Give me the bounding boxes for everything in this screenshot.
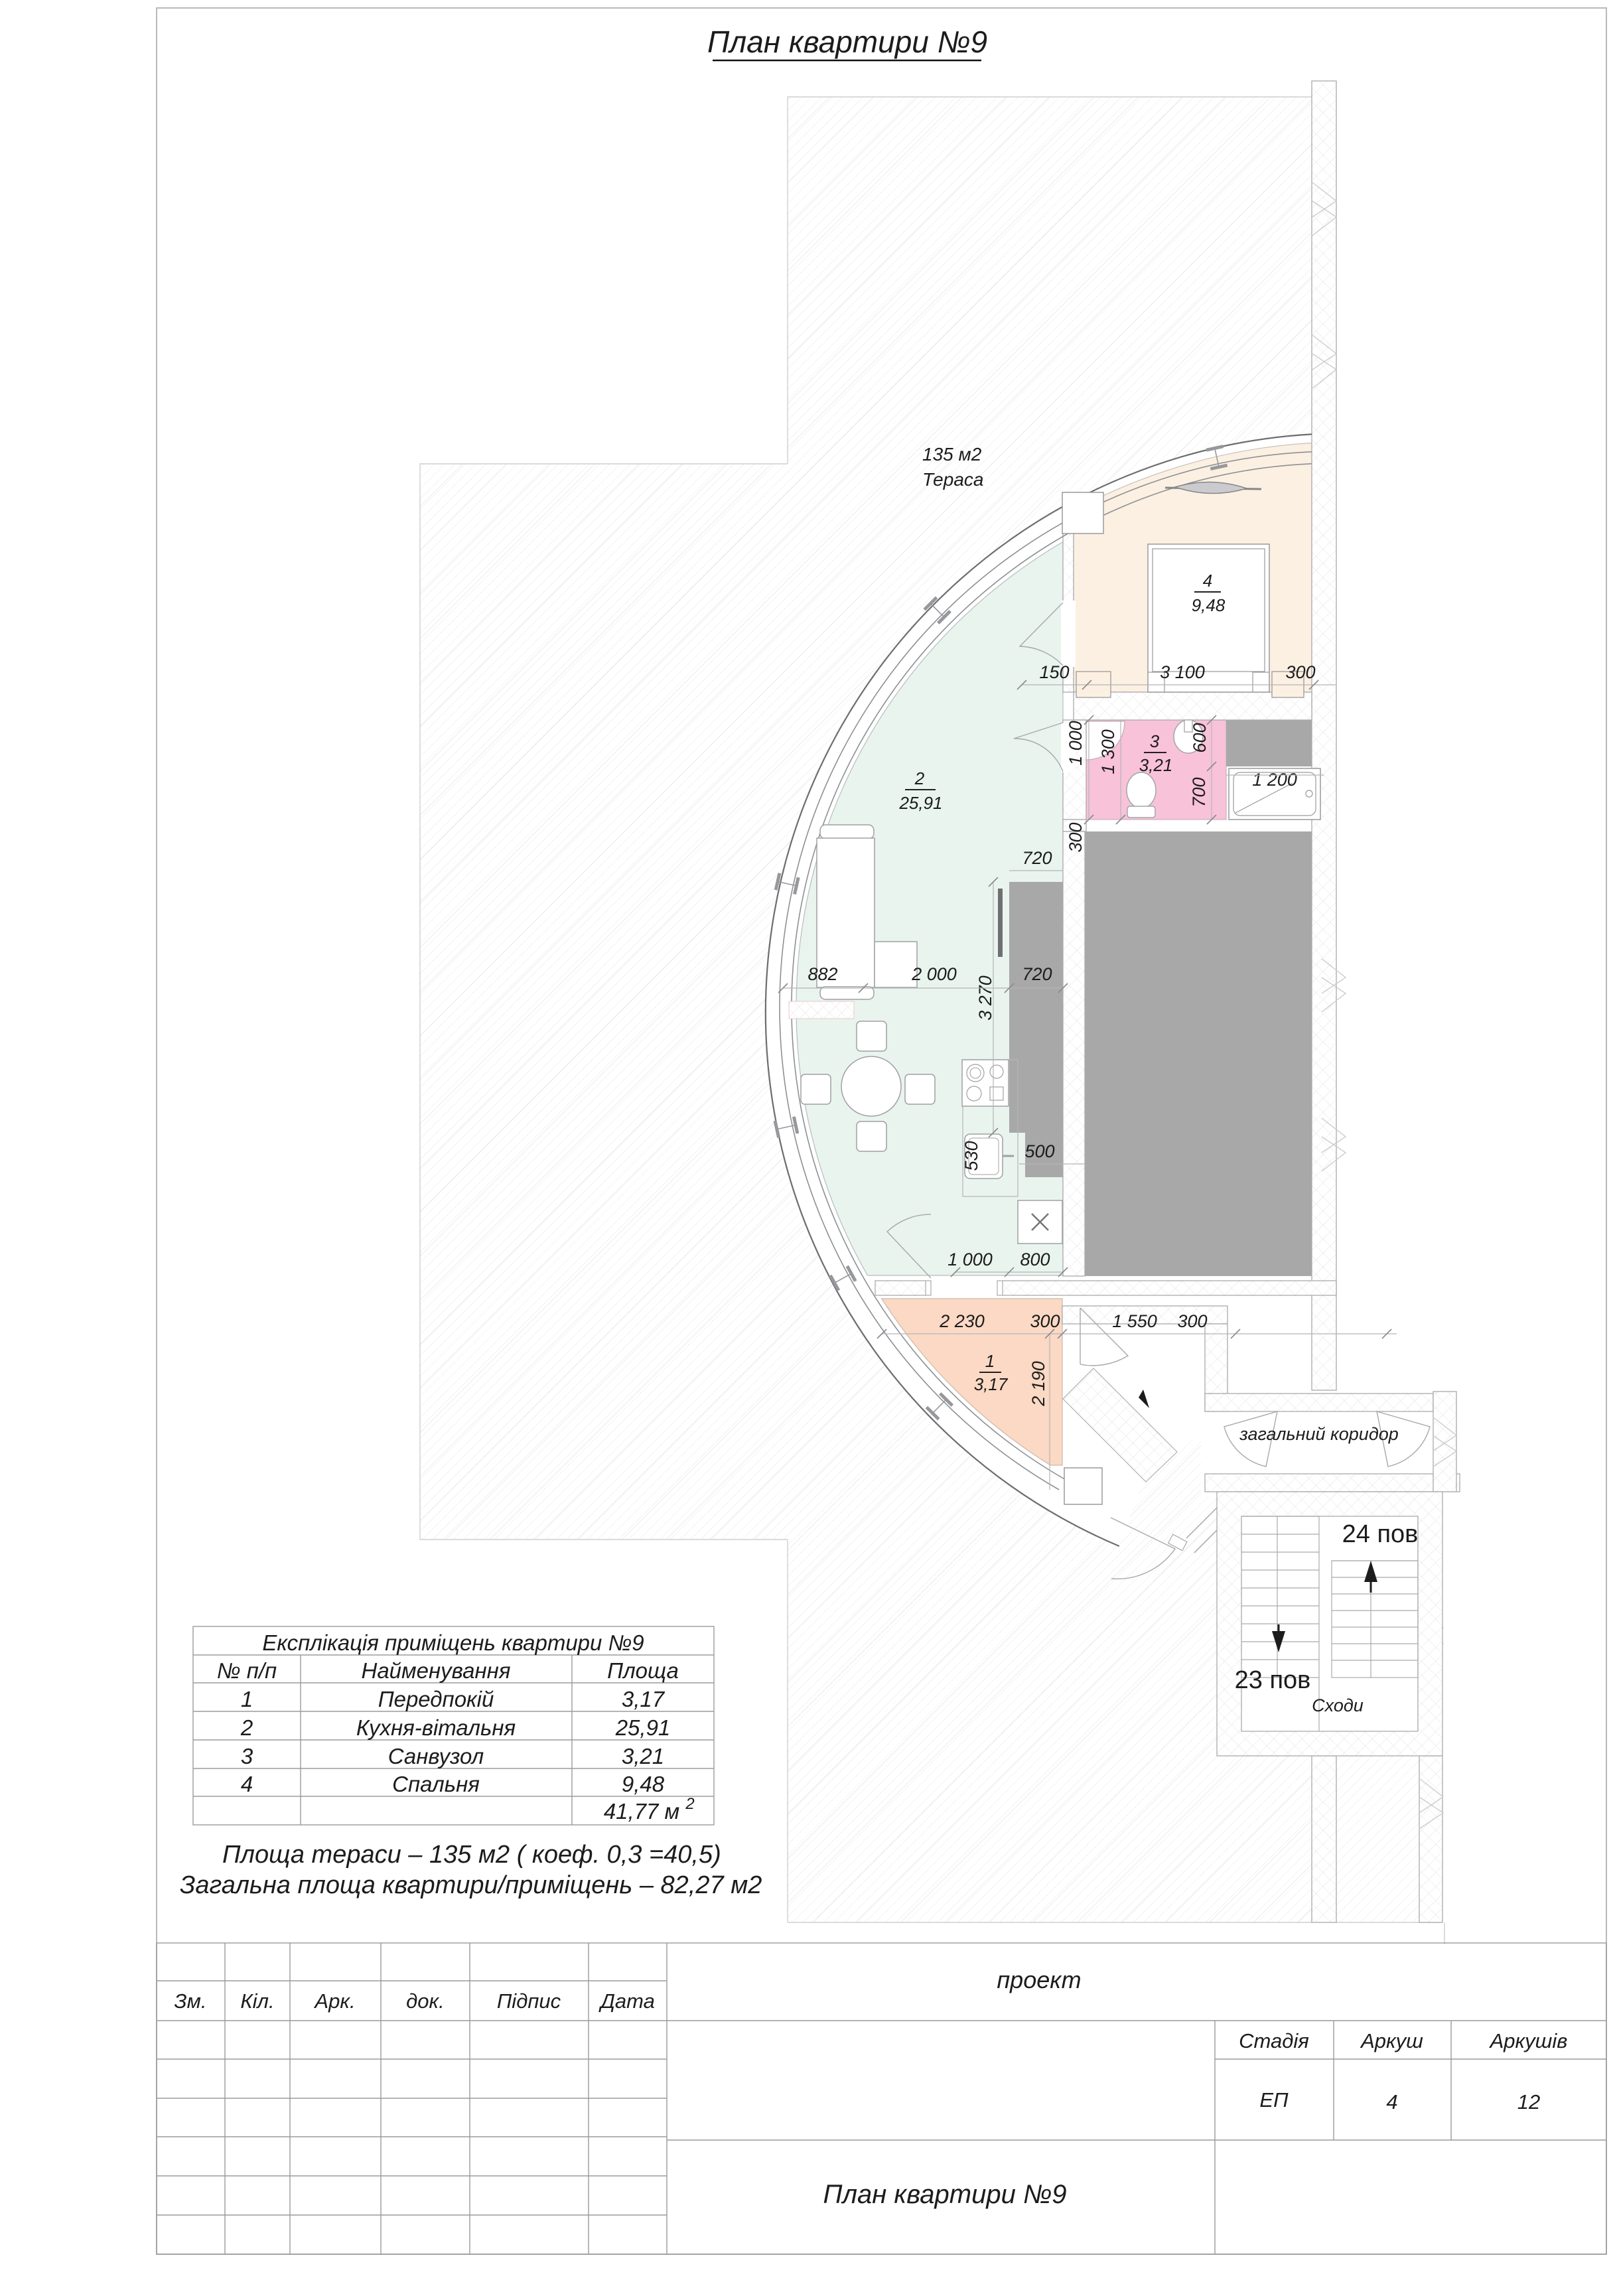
svg-text:Спальня: Спальня [392,1772,480,1796]
svg-text:1 300: 1 300 [1098,729,1118,774]
svg-text:План квартири №9: План квартири №9 [823,2180,1066,2209]
svg-text:3,21: 3,21 [1139,755,1173,775]
svg-text:25,91: 25,91 [898,793,942,813]
svg-text:1: 1 [241,1687,253,1711]
svg-text:23 пов: 23 пов [1235,1666,1311,1694]
svg-text:Дата: Дата [598,1989,655,2013]
svg-text:3,17: 3,17 [622,1687,666,1711]
svg-text:загальний коридор: загальний коридор [1239,1424,1399,1444]
svg-text:проект: проект [997,1966,1081,1993]
svg-text:300: 300 [1285,662,1315,682]
svg-text:Аркушів: Аркушів [1489,2029,1568,2052]
svg-text:1 000: 1 000 [948,1250,993,1269]
svg-text:150: 150 [1039,662,1069,682]
svg-text:3,17: 3,17 [974,1374,1009,1394]
svg-text:720: 720 [1022,848,1052,868]
svg-text:План квартири №9: План квартири №9 [707,25,987,59]
svg-text:Експлікація приміщень квартири: Експлікація приміщень квартири №9 [262,1630,644,1655]
svg-text:Тераса: Тераса [922,469,983,490]
svg-text:2 230: 2 230 [939,1311,985,1331]
svg-text:2: 2 [914,768,925,788]
svg-text:25,91: 25,91 [615,1715,671,1740]
svg-text:док.: док. [406,1989,445,2013]
svg-text:12: 12 [1517,2090,1540,2114]
svg-text:Аркуш: Аркуш [1360,2029,1423,2052]
svg-text:500: 500 [1024,1141,1054,1161]
svg-text:3 270: 3 270 [975,975,995,1021]
svg-text:Найменування: Найменування [362,1658,511,1683]
svg-text:2: 2 [685,1795,694,1813]
svg-text:2 190: 2 190 [1028,1361,1048,1407]
svg-text:Кухня-вітальня: Кухня-вітальня [356,1715,516,1740]
svg-text:Зм.: Зм. [175,1989,207,2013]
svg-text:4: 4 [1203,571,1212,591]
svg-text:300: 300 [1030,1311,1060,1331]
svg-text:Передпокій: Передпокій [378,1687,494,1711]
svg-text:1 550: 1 550 [1112,1311,1157,1331]
svg-text:300: 300 [1066,822,1086,852]
svg-text:720: 720 [1022,964,1052,984]
svg-text:3,21: 3,21 [622,1744,664,1768]
svg-text:Сходи: Сходи [1312,1695,1364,1715]
svg-text:Стадія: Стадія [1239,2029,1309,2052]
svg-text:№ п/п: № п/п [217,1658,277,1683]
svg-text:3 100: 3 100 [1160,662,1205,682]
svg-text:800: 800 [1020,1250,1050,1269]
svg-text:9,48: 9,48 [1192,595,1226,615]
svg-text:882: 882 [807,964,837,984]
svg-text:700: 700 [1189,777,1209,807]
svg-text:1 200: 1 200 [1252,770,1297,790]
svg-text:530: 530 [961,1141,981,1171]
svg-text:Підпис: Підпис [497,1989,561,2013]
svg-text:3: 3 [241,1744,253,1768]
svg-text:600: 600 [1190,723,1210,753]
svg-text:2 000: 2 000 [911,964,957,984]
svg-text:ЕП: ЕП [1259,2088,1289,2112]
svg-text:Арк.: Арк. [313,1989,355,2013]
svg-text:41,77 м: 41,77 м [604,1799,679,1824]
svg-text:24 пов: 24 пов [1342,1520,1419,1548]
svg-text:4: 4 [1386,2090,1397,2114]
svg-text:300: 300 [1177,1311,1207,1331]
svg-text:3: 3 [1150,731,1160,751]
svg-text:Площа тераси – 135 м2 ( коеф.: Площа тераси – 135 м2 ( коеф. 0,3 =40,5) [222,1841,721,1869]
svg-text:Кіл.: Кіл. [240,1989,274,2013]
svg-text:Площа: Площа [607,1658,679,1683]
svg-text:Загальна площа квартири/приміщ: Загальна площа квартири/приміщень – 82,2… [180,1871,762,1899]
svg-text:Санвузол: Санвузол [388,1744,484,1768]
svg-text:4: 4 [241,1772,253,1796]
svg-text:2: 2 [240,1715,253,1740]
svg-text:1: 1 [985,1351,995,1371]
svg-text:135 м2: 135 м2 [922,444,982,465]
svg-text:1 000: 1 000 [1066,721,1086,766]
svg-text:9,48: 9,48 [622,1772,665,1796]
